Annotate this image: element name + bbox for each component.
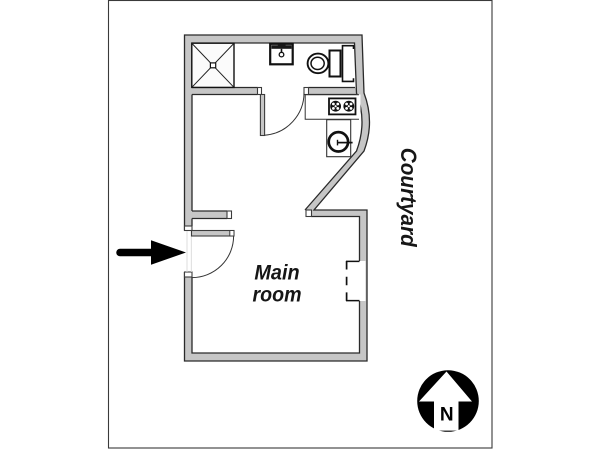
svg-text:N: N	[440, 404, 454, 425]
svg-text:room: room	[253, 283, 302, 307]
svg-text:Main: Main	[254, 261, 299, 285]
svg-text:Courtyard: Courtyard	[396, 148, 421, 248]
